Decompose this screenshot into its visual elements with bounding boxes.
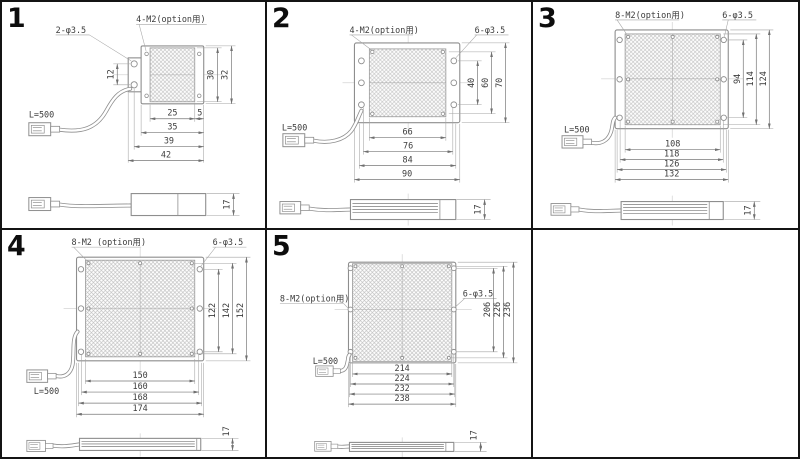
dim-label: 150 [132, 370, 147, 380]
panel-2: 2 4-M2(option用) 6-φ3.5 [267, 2, 532, 230]
cable-assembly: L=500 [282, 111, 361, 147]
side-height-label: 17 [222, 426, 232, 436]
dim-label: 174 [132, 404, 147, 414]
front-view [64, 248, 217, 371]
dim-label: 232 [395, 384, 410, 394]
dim-label: 84 [403, 155, 413, 165]
front-view [601, 22, 743, 138]
dim-label: 124 [758, 71, 768, 86]
dim-label: 236 [503, 301, 513, 316]
phi-hole [131, 61, 137, 67]
connector-plug [551, 204, 579, 216]
cable-assembly: L=500 [313, 354, 350, 376]
dim-label: 60 [480, 78, 490, 88]
cable-assembly: L=500 [29, 89, 130, 136]
connector-plug [27, 440, 53, 451]
dim-label: 30 [206, 70, 216, 80]
side-height-label: 17 [222, 199, 232, 209]
side-height-label: 17 [743, 205, 753, 215]
phi-label: 6-φ3.5 [722, 11, 753, 21]
annotation-m2: 8-M2(option用) [280, 294, 349, 308]
dim-label: 35 [167, 122, 177, 132]
dim-label: 94 [732, 74, 742, 84]
dim-label: 40 [467, 78, 477, 88]
panel-4-drawing: 4 8-M2 (option用) 6-φ3.5 [2, 230, 265, 458]
panel-1-drawing: 1 2-φ3.5 4-M2(option用) [2, 2, 265, 228]
dim-label: 206 [483, 301, 493, 316]
cable-length-label: L=500 [29, 110, 54, 120]
cable-assembly: L=500 [27, 331, 78, 396]
connector-plug [316, 365, 341, 375]
annotation-phi: 6-φ3.5 [201, 238, 247, 266]
panel-number: 4 [7, 231, 26, 262]
connector-plug [29, 123, 60, 136]
cable-assembly: L=500 [562, 118, 615, 148]
side-view: 17 [280, 194, 491, 226]
connector-plug [562, 136, 591, 148]
right-dimensions: 94 114 124 [723, 30, 773, 129]
phi-hole [131, 82, 137, 88]
panel-number: 5 [272, 231, 291, 262]
right-dimensions: 206 226 236 [452, 262, 518, 363]
panel-5: 5 8-M2(option用) 6-φ3.5 [267, 230, 532, 458]
phi-label: 6-φ3.5 [213, 238, 244, 248]
cable-length-label: L=500 [313, 356, 338, 366]
front-view [335, 254, 472, 371]
annotation-m2: 4-M2(option用) [136, 14, 207, 51]
panel-number: 3 [538, 3, 557, 34]
dim-label: 32 [220, 70, 230, 80]
dim-label: 132 [664, 170, 679, 180]
dim-label: 90 [402, 169, 412, 179]
dim-label: 118 [664, 150, 679, 160]
dim-label: 25 [167, 108, 177, 118]
dim-label: 5 [197, 108, 202, 118]
empty-cell [533, 230, 798, 458]
panel-3-drawing: 3 8-M2(option用) 6-φ3.5 [533, 2, 798, 228]
dim-label: 42 [161, 150, 171, 160]
cable-length-label: L=500 [282, 123, 307, 133]
dim-label: 126 [664, 160, 679, 170]
m2-label: 8-M2(option用) [280, 294, 349, 304]
cable-length-label: L=500 [564, 126, 590, 136]
bottom-dimensions: 108 118 126 132 [615, 121, 728, 183]
dim-label: 70 [494, 78, 504, 88]
side-view: 17 [315, 430, 487, 457]
panel-number: 2 [272, 3, 291, 34]
phi-label: 2-φ3.5 [56, 25, 86, 35]
panel-5-drawing: 5 8-M2(option用) 6-φ3.5 [267, 230, 530, 458]
dim-label: 142 [222, 302, 232, 317]
dim-label: 12 [105, 69, 115, 79]
dim-label: 214 [395, 363, 410, 373]
connector-plug [283, 134, 314, 147]
side-view: 17 [27, 426, 239, 456]
dim-label: 226 [493, 301, 503, 316]
m2-label: 4-M2(option用) [136, 14, 205, 24]
m2-label: 8-M2(option用) [615, 11, 685, 21]
dim-label: 39 [164, 136, 174, 146]
panel-4: 4 8-M2 (option用) 6-φ3.5 [2, 230, 267, 458]
connector-plug [280, 202, 309, 214]
side-view: 17 [551, 196, 760, 226]
dim-label: 108 [665, 140, 680, 150]
phi-label: 6-φ3.5 [475, 25, 505, 35]
annotation-phi: 2-φ3.5 [56, 25, 132, 61]
drawing-sheet: 1 2-φ3.5 4-M2(option用) [0, 0, 800, 459]
panel-number: 1 [7, 3, 26, 34]
m2-label: 4-M2(option用) [350, 25, 419, 35]
side-view: 17 [29, 194, 240, 216]
dim-label: 76 [403, 141, 413, 151]
dim-label: 152 [236, 302, 246, 317]
side-height-label: 17 [470, 430, 480, 440]
dim-label: 160 [132, 382, 147, 392]
connector-plug [315, 441, 338, 451]
dim-label: 238 [395, 394, 410, 404]
m2-label: 8-M2 (option用) [72, 238, 147, 248]
dim-label: 114 [745, 71, 755, 86]
panel-1: 1 2-φ3.5 4-M2(option用) [2, 2, 267, 230]
cable-length-label: L=500 [34, 387, 59, 397]
dim-label: 224 [395, 373, 410, 383]
panel-3: 3 8-M2(option用) 6-φ3.5 [533, 2, 798, 230]
phi-label: 6-φ3.5 [463, 289, 494, 299]
side-height-label: 17 [473, 204, 483, 214]
connector-plug [27, 369, 56, 381]
dim-label: 168 [132, 393, 147, 403]
connector-plug [29, 198, 60, 211]
left-dimension: 12 [105, 64, 130, 85]
dim-label: 66 [403, 127, 413, 137]
dim-label: 122 [208, 302, 218, 317]
front-view [343, 32, 474, 135]
annotation-phi: 6-φ3.5 [456, 25, 509, 58]
panel-2-drawing: 2 4-M2(option用) 6-φ3.5 [267, 2, 530, 228]
